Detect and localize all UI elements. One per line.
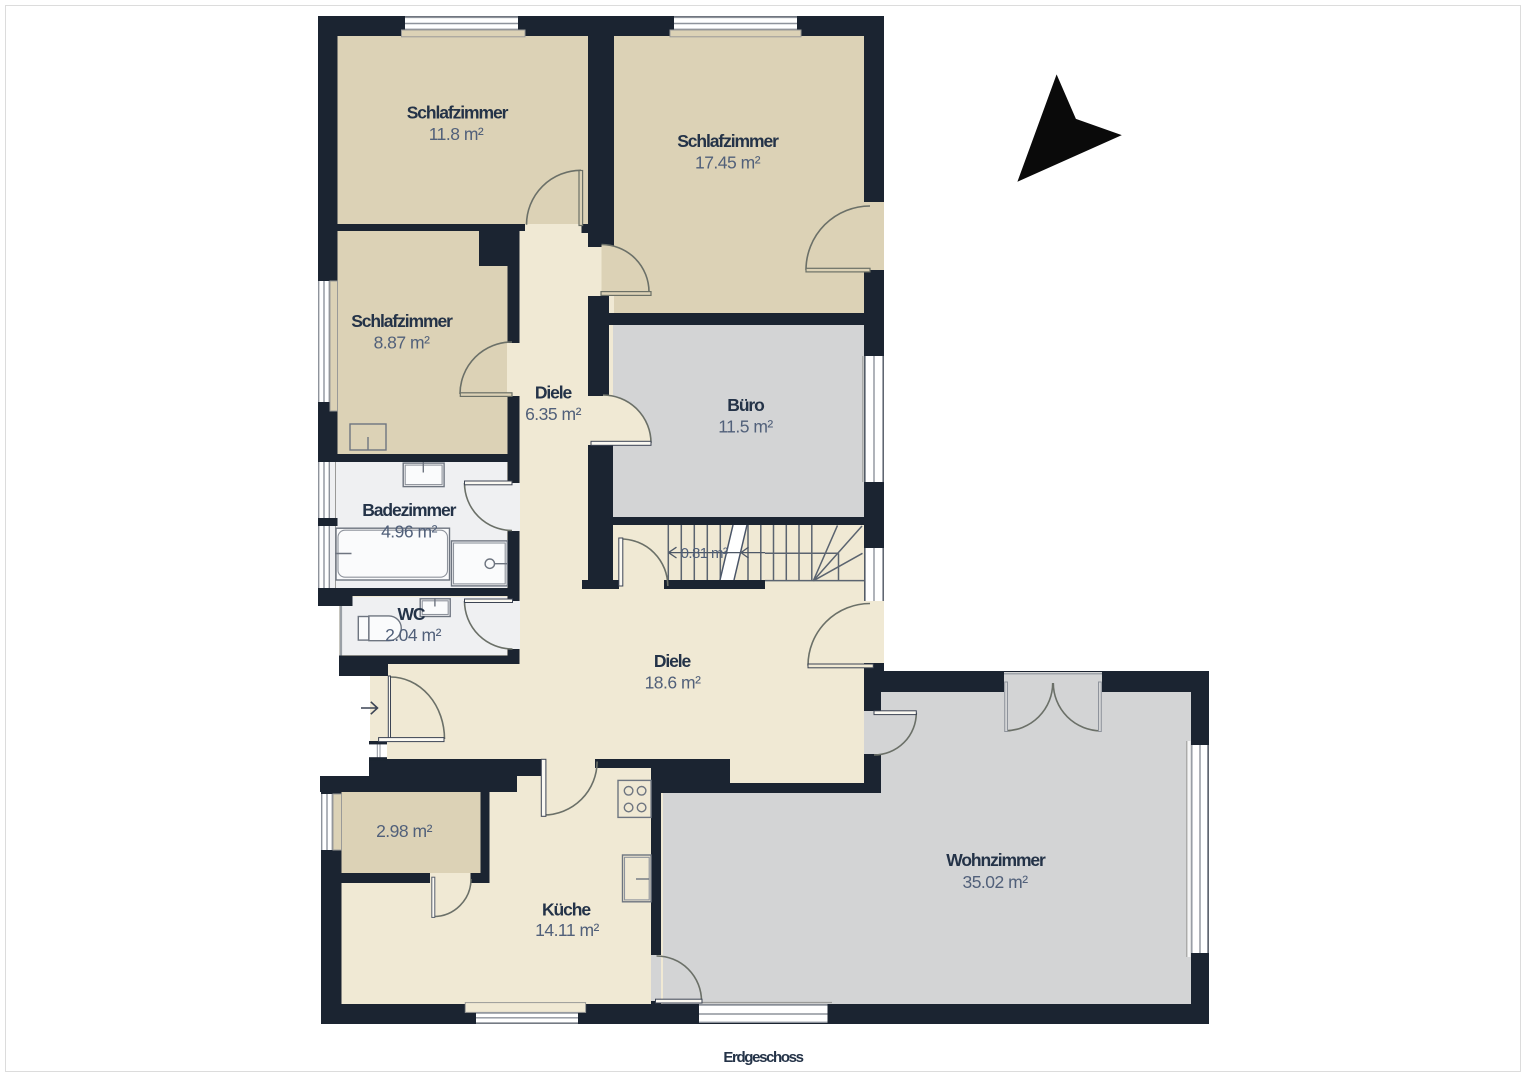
svg-text:11.8 m²: 11.8 m²	[429, 124, 484, 144]
svg-text:Schlafzimmer: Schlafzimmer	[407, 103, 509, 123]
svg-text:4.96 m²: 4.96 m²	[381, 522, 437, 542]
svg-text:Küche: Küche	[542, 900, 591, 920]
svg-text:Schlafzimmer: Schlafzimmer	[677, 131, 779, 151]
svg-text:2.98 m²: 2.98 m²	[376, 821, 432, 841]
svg-text:11.5 m²: 11.5 m²	[718, 417, 773, 437]
svg-text:Büro: Büro	[727, 395, 764, 415]
svg-text:14.11 m²: 14.11 m²	[535, 920, 599, 940]
svg-text:17.45 m²: 17.45 m²	[695, 153, 761, 173]
svg-text:WC: WC	[398, 604, 426, 624]
svg-text:Diele: Diele	[535, 383, 573, 403]
svg-text:Schlafzimmer: Schlafzimmer	[351, 311, 453, 331]
svg-text:18.6 m²: 18.6 m²	[645, 673, 701, 693]
svg-text:0.81 m²: 0.81 m²	[681, 545, 728, 562]
svg-text:Wohnzimmer: Wohnzimmer	[946, 850, 1046, 870]
svg-text:6.35 m²: 6.35 m²	[525, 404, 581, 424]
svg-text:2.04 m²: 2.04 m²	[385, 625, 441, 645]
svg-text:Diele: Diele	[654, 651, 692, 671]
svg-text:35.02 m²: 35.02 m²	[962, 872, 1028, 892]
svg-text:Erdgeschoss: Erdgeschoss	[723, 1049, 803, 1066]
svg-text:Badezimmer: Badezimmer	[362, 500, 456, 520]
svg-text:8.87 m²: 8.87 m²	[374, 333, 430, 353]
